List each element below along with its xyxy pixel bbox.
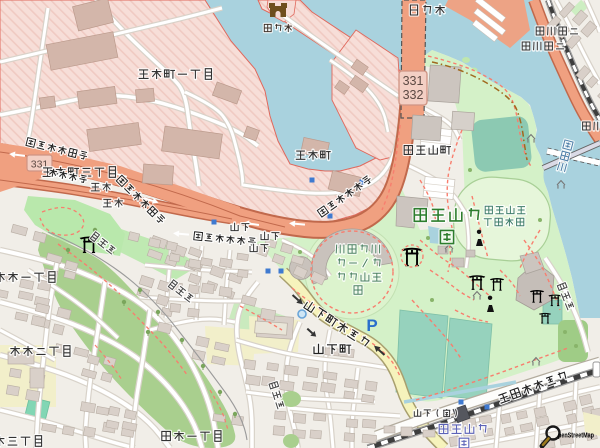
svg-text:332: 332 (403, 88, 424, 102)
svg-text:331: 331 (403, 74, 424, 88)
svg-text:penStreetMap: penStreetMap (558, 431, 594, 440)
svg-text:P: P (366, 316, 377, 335)
